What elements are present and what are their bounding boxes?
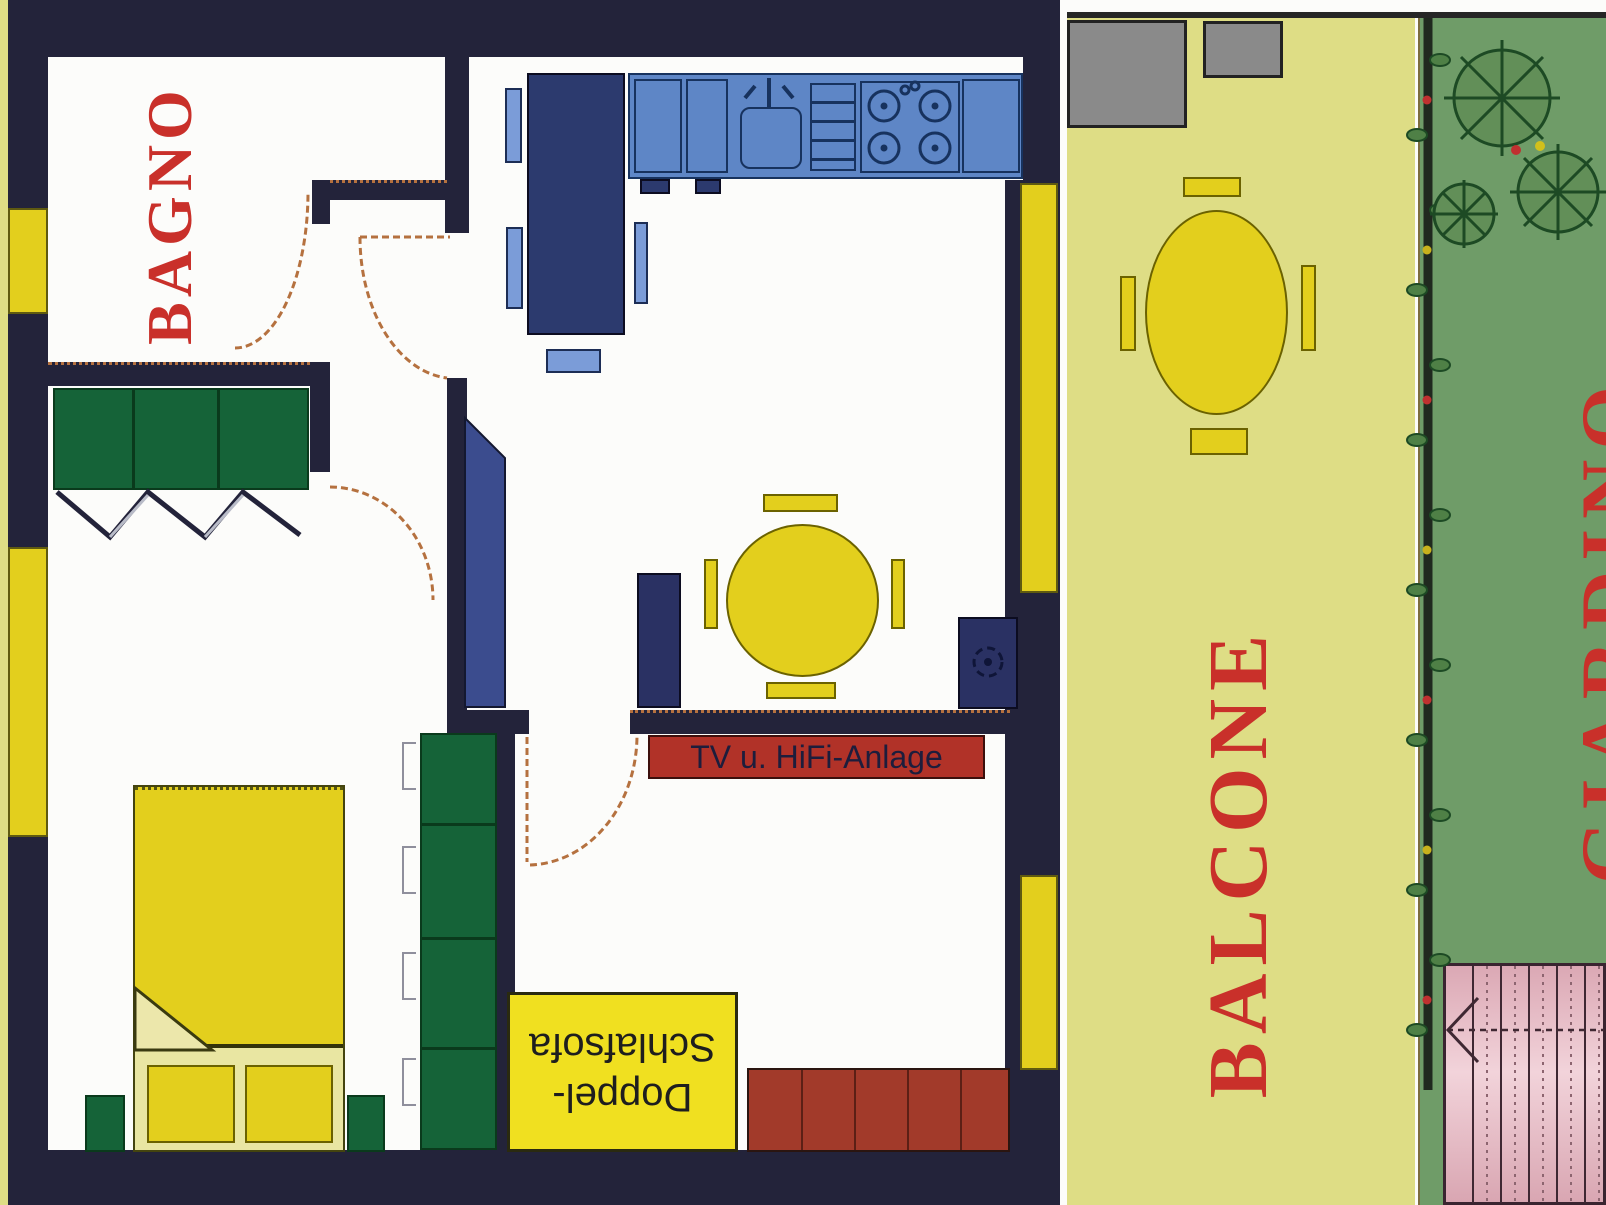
open-door-leaf bbox=[465, 418, 505, 707]
door-arc-closet bbox=[330, 487, 433, 600]
staircase-treads bbox=[1447, 966, 1604, 1203]
door-arc-bedroom bbox=[530, 735, 637, 865]
plan-detail-overlay bbox=[0, 0, 1606, 1205]
stove-burners bbox=[869, 82, 950, 163]
bed-fold bbox=[135, 988, 212, 1050]
floor-plan: BAGNO TV u. HiFi-Anlage bbox=[0, 0, 1606, 1205]
faucet-icon bbox=[745, 78, 793, 108]
door-arc-bathroom bbox=[235, 192, 308, 348]
speaker-swirl-icon bbox=[974, 648, 1002, 676]
garden-trees bbox=[1430, 40, 1606, 248]
closet-folding-doors bbox=[57, 492, 300, 537]
door-arc-hall bbox=[360, 237, 447, 378]
